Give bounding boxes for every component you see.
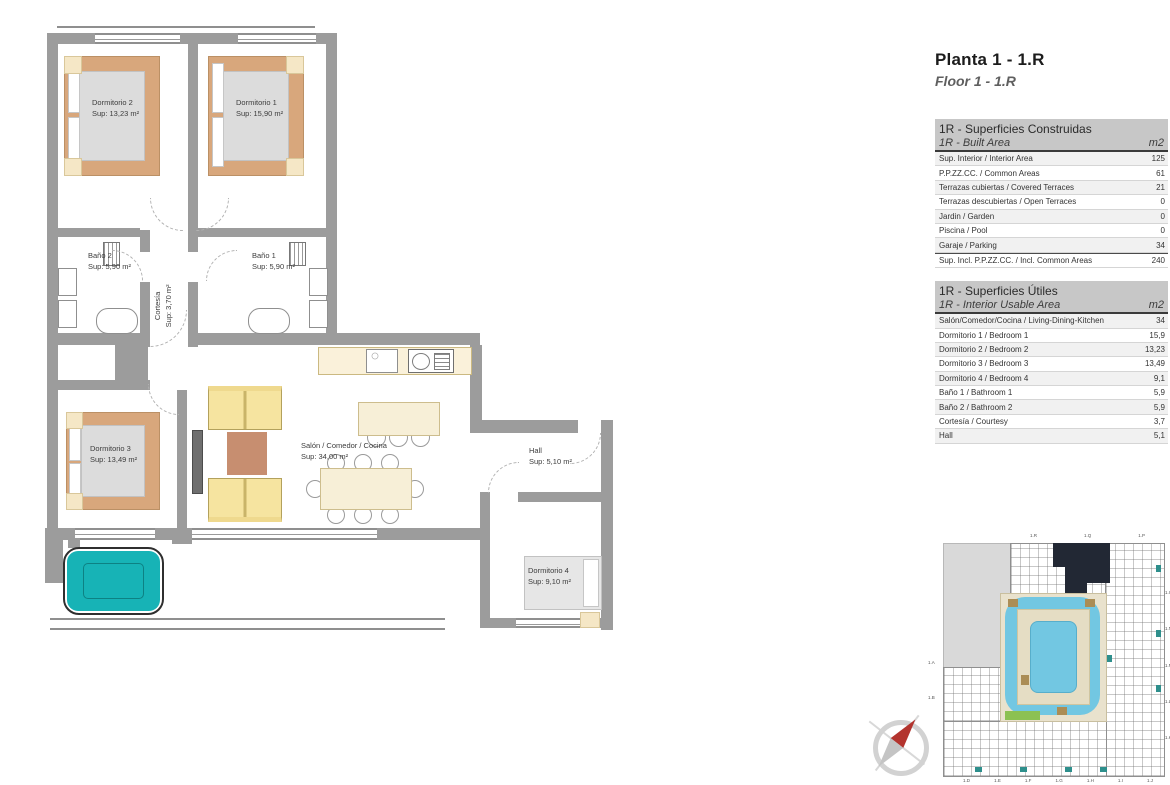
table-row: Sup. Interior / Interior Area125: [935, 152, 1168, 166]
door-arc: [150, 198, 183, 231]
door-arc: [148, 384, 179, 415]
siteplan-highlighted-unit: [1053, 543, 1065, 567]
tv-unit: [192, 430, 203, 494]
siteplan-labels-bottom: 1.D1.E1.F1.G1.H1.I1.J: [963, 778, 1153, 783]
door-arc: [206, 250, 237, 281]
wall: [155, 528, 172, 540]
stove-icon: [366, 349, 398, 373]
siteplan-highlighted-unit: [1065, 583, 1087, 593]
siteplan-detail: [1085, 599, 1095, 607]
siteplan-detail: [1057, 707, 1067, 715]
page-subtitle: Floor 1 - 1.R: [935, 73, 1168, 89]
table-unit: m2: [1149, 299, 1164, 311]
wall: [47, 33, 58, 528]
siteplan: 1.R1.Q1.P 1.O1.N1.M1.L1.K 1.D1.E1.F1.G1.…: [935, 535, 1170, 780]
siteplan-building-left: [943, 667, 1002, 722]
room-label-cortesia: CortesíaSup: 3,70 m²: [153, 268, 175, 344]
plan-sheet: Dormitorio 2Sup: 13,23 m² Dormitorio 1Su…: [0, 0, 1170, 785]
sofa: [208, 478, 282, 522]
siteplan-accent: [1156, 565, 1161, 572]
table-title-en: 1R - Built Area: [939, 137, 1010, 149]
wall: [480, 618, 516, 628]
kitchen-island: [358, 402, 440, 436]
room-label-hall: HallSup: 5,10 m²: [529, 446, 572, 468]
vanity-sink: [309, 268, 328, 296]
siteplan-accent: [975, 767, 982, 772]
wall: [326, 33, 337, 345]
built-areas-header: 1R - Superficies Construidas 1R - Built …: [935, 119, 1168, 152]
table-row: Cortesía / Courtesy3,7: [935, 415, 1168, 429]
room-label-dormitorio1: Dormitorio 1Sup: 15,90 m²: [236, 98, 283, 120]
room-label-salon: Salón / Comedor / CocinaSup: 34,00 m²: [301, 441, 387, 463]
window: [172, 528, 377, 540]
window: [238, 33, 316, 44]
siteplan-accent: [1156, 685, 1161, 692]
terrace-edge: [50, 618, 445, 630]
built-areas-table: 1R - Superficies Construidas 1R - Built …: [935, 119, 1168, 268]
wall: [140, 230, 150, 252]
room-label-dormitorio3: Dormitorio 3Sup: 13,49 m²: [90, 444, 137, 466]
wall: [58, 228, 140, 237]
siteplan-detail: [1021, 675, 1029, 685]
north-compass-icon: [858, 704, 938, 784]
table-row: Piscina / Pool0: [935, 224, 1168, 238]
siteplan-accent: [1065, 767, 1072, 772]
bathtub: [248, 308, 290, 334]
door-arc: [570, 433, 601, 464]
wall: [518, 492, 601, 502]
jacuzzi: [63, 547, 164, 615]
vanity-sink: [58, 268, 77, 296]
wall: [172, 528, 192, 544]
page-title: Planta 1 - 1.R: [935, 50, 1168, 70]
table-title-en: 1R - Interior Usable Area: [939, 299, 1060, 311]
siteplan-highlighted-unit: [1065, 543, 1110, 583]
table-title-es: 1R - Superficies Útiles: [939, 284, 1164, 298]
table-unit: m2: [1149, 137, 1164, 149]
table-row: Sup. Incl. P.P.ZZ.CC. / Incl. Common Are…: [935, 253, 1168, 268]
table-row: Dormitorio 4 / Bedroom 49,1: [935, 372, 1168, 386]
dining-table: [320, 468, 412, 510]
usable-areas-table: 1R - Superficies Útiles 1R - Interior Us…: [935, 281, 1168, 444]
usable-areas-rows: Salón/Comedor/Cocina / Living-Dining-Kit…: [935, 314, 1168, 444]
wall: [480, 492, 490, 628]
siteplan-accent: [1107, 655, 1112, 662]
table-row: P.P.ZZ.CC. / Common Areas61: [935, 166, 1168, 180]
wall: [377, 528, 480, 540]
window: [516, 618, 580, 628]
table-row: Hall5,1: [935, 429, 1168, 443]
siteplan-accent: [1100, 767, 1107, 772]
kitchen-sink-icon: [408, 349, 454, 373]
floorplan: Dormitorio 2Sup: 13,23 m² Dormitorio 1Su…: [0, 0, 700, 700]
window: [95, 33, 180, 44]
table-row: Terrazas cubiertas / Covered Terraces21: [935, 181, 1168, 195]
table-row: Dormitorio 3 / Bedroom 313,49: [935, 357, 1168, 371]
siteplan-pool: [1030, 621, 1077, 693]
siteplan-building-right: [1105, 543, 1165, 777]
table-row: Baño 2 / Bathroom 25,9: [935, 400, 1168, 414]
table-row: Baño 1 / Bathroom 15,9: [935, 386, 1168, 400]
info-panel: Planta 1 - 1.R Floor 1 - 1.R 1R - Superf…: [935, 50, 1168, 444]
table-row: Salón/Comedor/Cocina / Living-Dining-Kit…: [935, 314, 1168, 328]
built-areas-rows: Sup. Interior / Interior Area125 P.P.ZZ.…: [935, 152, 1168, 268]
wall: [601, 420, 613, 630]
siteplan-detail: [1008, 599, 1018, 607]
wall: [188, 333, 480, 345]
siteplan-lawn: [1005, 711, 1040, 720]
table-row: Dormitorio 1 / Bedroom 115,9: [935, 329, 1168, 343]
room-label-dormitorio2: Dormitorio 2Sup: 13,23 m²: [92, 98, 139, 120]
wall: [188, 230, 198, 252]
wall: [198, 228, 326, 237]
rug: [227, 432, 267, 475]
siteplan-labels-top: 1.R1.Q1.P: [1030, 533, 1145, 538]
table-row: Garaje / Parking34: [935, 238, 1168, 252]
room-label-bano1: Baño 1Sup: 5,90 m²: [252, 251, 295, 273]
wall: [47, 380, 150, 390]
siteplan-labels-right: 1.O1.N1.M1.L1.K: [1165, 590, 1170, 740]
table-row: Terrazas descubiertas / Open Terraces0: [935, 195, 1168, 209]
vanity-sink: [58, 300, 77, 328]
usable-areas-header: 1R - Superficies Útiles 1R - Interior Us…: [935, 281, 1168, 314]
vanity-sink: [309, 300, 328, 328]
siteplan-accent: [1020, 767, 1027, 772]
window: [75, 528, 155, 540]
wall: [470, 420, 578, 433]
room-label-dormitorio4: Dormitorio 4Sup: 9,10 m²: [528, 566, 571, 588]
room-label-bano2: Baño 2Sup: 5,90 m²: [88, 251, 131, 273]
door-arc: [196, 198, 229, 231]
slab-edge-line: [57, 26, 315, 28]
wall: [47, 33, 95, 44]
bathtub: [96, 308, 138, 334]
table-row: Dormitorio 2 / Bedroom 213,23: [935, 343, 1168, 357]
wall: [180, 33, 238, 44]
table-title-es: 1R - Superficies Construidas: [939, 122, 1164, 136]
sofa: [208, 386, 282, 430]
door-arc: [488, 462, 519, 493]
siteplan-accent: [1156, 630, 1161, 637]
wall: [115, 333, 148, 380]
nightstand: [580, 612, 600, 628]
siteplan-labels-left: 1.A1.B: [928, 660, 935, 700]
table-row: Jardin / Garden0: [935, 210, 1168, 224]
